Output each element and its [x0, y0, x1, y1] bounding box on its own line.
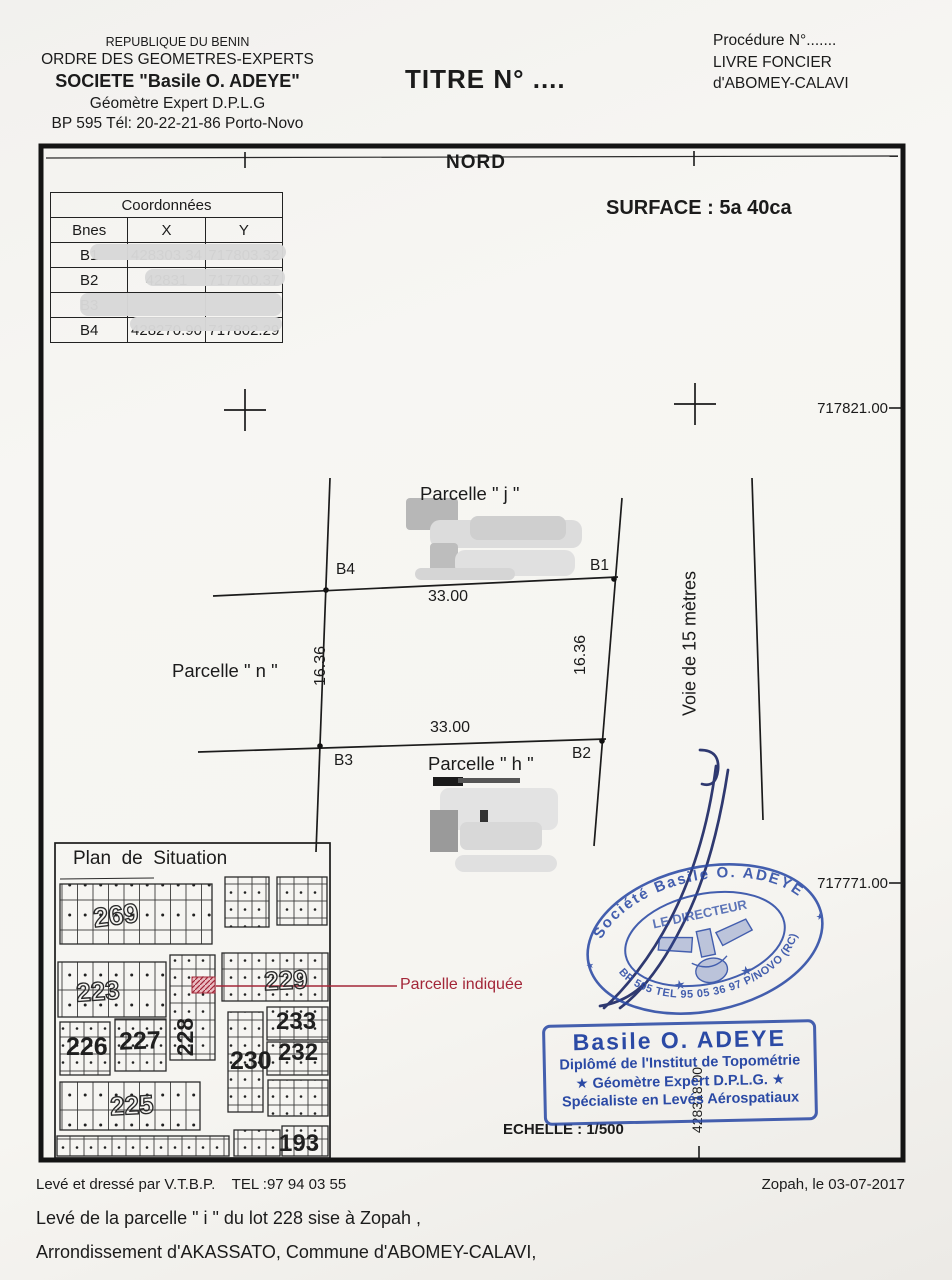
situation-lot-numbers: 269 223 229 228 226 227 230 233 232 225 …	[66, 898, 319, 1157]
svg-text:★: ★	[739, 962, 754, 979]
lot-230: 230	[230, 1047, 272, 1075]
situation-title: Plan de Situation	[73, 848, 227, 870]
oval-stamp: Société Basile O. ADEYE BP 595 TEL 95 05…	[575, 842, 837, 1038]
oval-stamp-emblem	[656, 918, 761, 992]
procedure-number: Procédure N°.......	[713, 30, 849, 52]
oval-stamp-stars: ★★ ★★	[585, 911, 833, 1010]
lot-233: 233	[276, 1008, 316, 1035]
letterhead-role: Géomètre Expert D.P.L.G	[30, 94, 325, 114]
boundary-b3-b2	[198, 739, 606, 752]
grid-y-top: 717821.00	[790, 400, 888, 417]
lot-225: 225	[109, 1089, 154, 1121]
road-label: Voie de 15 mètres	[680, 544, 701, 744]
surveyor-stamp-box: Basile O. ADEYE Diplômé de l'Institut de…	[542, 1019, 818, 1126]
oval-stamp-director-text: LE DIRECTEUR	[651, 897, 749, 932]
lot-193: 193	[279, 1130, 319, 1157]
situation-map-street-line	[60, 878, 154, 879]
coord-table-title: Coordonnées	[51, 193, 283, 218]
dim-top: 33.00	[428, 588, 468, 605]
redaction-parcel-h	[430, 777, 558, 872]
label-b4: B4	[336, 561, 355, 578]
boundary-b4-b1	[213, 577, 618, 596]
lot-228: 228	[172, 1018, 198, 1057]
redaction-b2	[145, 269, 285, 286]
label-b2: B2	[572, 745, 591, 762]
label-b1: B1	[590, 557, 609, 574]
lot-226: 226	[66, 1033, 108, 1061]
oval-stamp-bottom-text: BP 595 TEL 95 05 36 97 P/NOVO (RC)	[615, 929, 809, 1017]
footer-description-line1: Levé de la parcelle " i " du lot 228 sis…	[36, 1208, 421, 1229]
letterhead-company: SOCIETE "Basile O. ADEYE"	[30, 70, 325, 93]
signature-ink	[600, 750, 728, 1008]
svg-text:★: ★	[673, 976, 688, 993]
situation-map-blocks	[57, 877, 328, 1156]
scanned-survey-document: REPUBLIQUE DU BENIN ORDRE DES GEOMETRES-…	[0, 0, 952, 1280]
parcel-n-label: Parcelle " n "	[172, 660, 278, 682]
parcel-h-label: Parcelle " h "	[428, 753, 534, 775]
dim-right: 16.36	[572, 635, 589, 675]
letterhead-order: ORDRE DES GEOMETRES-EXPERTS	[30, 50, 325, 70]
north-label: NORD	[446, 152, 506, 174]
parcel-j-label: Parcelle " j "	[420, 483, 520, 505]
boundary-corner-dots	[317, 576, 617, 749]
parcel-boundaries	[198, 478, 763, 852]
document-title: TITRE N° ....	[405, 64, 566, 95]
dim-left: 16.36	[312, 646, 329, 686]
lot-232: 232	[278, 1039, 318, 1066]
coord-col-y: Y	[205, 218, 282, 243]
lot-269: 269	[92, 898, 140, 933]
livre-foncier: LIVRE FONCIER	[713, 52, 849, 74]
oval-stamp-inner-ring	[616, 878, 793, 1000]
corner-labels: B4 B1 B3 B2	[334, 557, 609, 769]
redaction-parcel-j	[406, 498, 582, 580]
lot-229: 229	[263, 964, 308, 996]
svg-text:★: ★	[585, 960, 595, 971]
letterhead: REPUBLIQUE DU BENIN ORDRE DES GEOMETRES-…	[30, 34, 325, 134]
grid-crosses	[224, 383, 716, 431]
indicated-parcel-cell	[192, 977, 215, 993]
redaction-b3	[80, 293, 282, 316]
label-b3: B3	[334, 752, 353, 769]
situation-map-box	[55, 843, 330, 1158]
dim-bottom: 33.00	[430, 719, 470, 736]
grid-ticks	[245, 151, 902, 1160]
procedure-block: Procédure N°....... LIVRE FONCIER d'ABOM…	[713, 30, 849, 95]
lot-227: 227	[119, 1026, 162, 1055]
letterhead-country: REPUBLIQUE DU BENIN	[30, 34, 325, 50]
oval-stamp-outer-ring	[575, 844, 836, 1034]
boundary-b4-b3	[316, 478, 330, 852]
letterhead-address: BP 595 Tél: 20-22-21-86 Porto-Novo	[30, 114, 325, 134]
coordinates-table: Coordonnées Bnes X Y B1428303.34717803.3…	[50, 192, 283, 343]
redaction-b1	[90, 244, 286, 260]
livre-commune: d'ABOMEY-CALAVI	[713, 73, 849, 95]
surface-label: SURFACE : 5a 40ca	[606, 197, 792, 220]
footer-description-line2: Arrondissement d'AKASSATO, Commune d'ABO…	[36, 1242, 536, 1263]
dimension-labels: 33.00 33.00 16.36 16.36	[312, 588, 589, 736]
oval-stamp-top-text: Société Basile O. ADEYE	[581, 845, 809, 944]
svg-text:★: ★	[815, 911, 825, 922]
redaction-b4	[130, 317, 282, 331]
grid-y-bottom: 717771.00	[790, 875, 888, 892]
lot-223: 223	[75, 975, 120, 1008]
coord-col-x: X	[128, 218, 205, 243]
coord-col-bnes: Bnes	[51, 218, 128, 243]
footer-place-date: Zopah, le 03-07-2017	[700, 1176, 905, 1193]
boundary-b1-b2	[594, 498, 622, 846]
indicated-parcel-label: Parcelle indiquée	[400, 976, 523, 994]
footer-surveyed-by: Levé et dressé par V.T.B.P. TEL :97 94 0…	[36, 1176, 346, 1193]
road-far-edge	[752, 478, 763, 820]
